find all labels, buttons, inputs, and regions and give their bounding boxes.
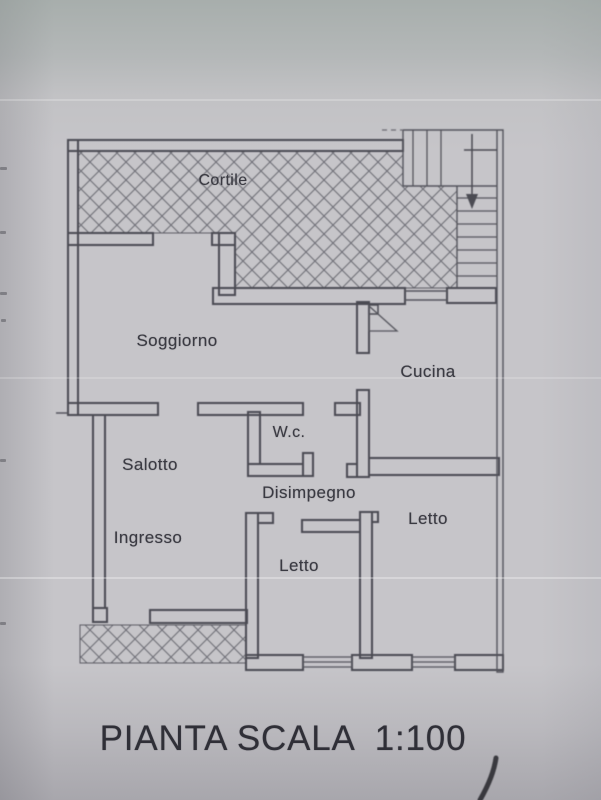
cortile-hatch: [78, 151, 457, 288]
photo-speck: [1, 319, 6, 322]
floor-plan-drawing: [0, 0, 601, 800]
room-label-ingresso: Ingresso: [114, 528, 182, 548]
photo-smudge: [480, 758, 496, 800]
door-swing: [369, 305, 397, 331]
room-label-cortile: Cortile: [198, 172, 247, 190]
room-label-soggiorno: Soggiorno: [136, 331, 217, 351]
room-label-cucina: Cucina: [400, 362, 455, 382]
photo-speck: [0, 167, 7, 170]
room-label-letto-centro: Letto: [279, 556, 319, 576]
photo-speck: [0, 459, 6, 462]
room-label-disimpegno: Disimpegno: [262, 483, 356, 503]
window-sills: [303, 657, 455, 667]
room-label-salotto: Salotto: [122, 455, 178, 475]
balcony-hatch: [80, 625, 246, 663]
plan-title: PIANTA SCALA 1:100: [100, 719, 467, 759]
room-label-wc: W.c.: [273, 424, 306, 442]
photo-speck: [0, 622, 6, 625]
room-label-letto-destra: Letto: [408, 509, 448, 529]
photo-speck: [0, 231, 6, 234]
photo-speck: [0, 292, 7, 295]
floor-plan-photo: Cortile Soggiorno Cucina W.c. Salotto Di…: [0, 0, 601, 800]
